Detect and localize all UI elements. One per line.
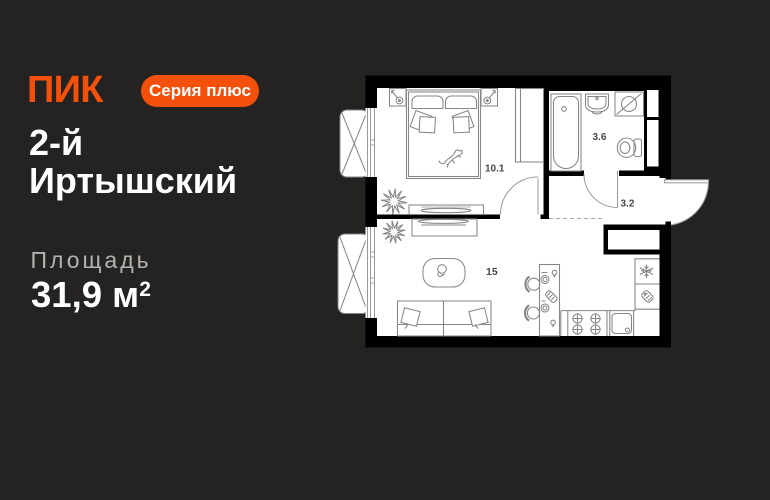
svg-text:3.6: 3.6 bbox=[593, 132, 607, 143]
svg-text:15: 15 bbox=[486, 266, 498, 278]
svg-text:3.2: 3.2 bbox=[621, 199, 635, 210]
svg-text:10.1: 10.1 bbox=[485, 164, 505, 175]
